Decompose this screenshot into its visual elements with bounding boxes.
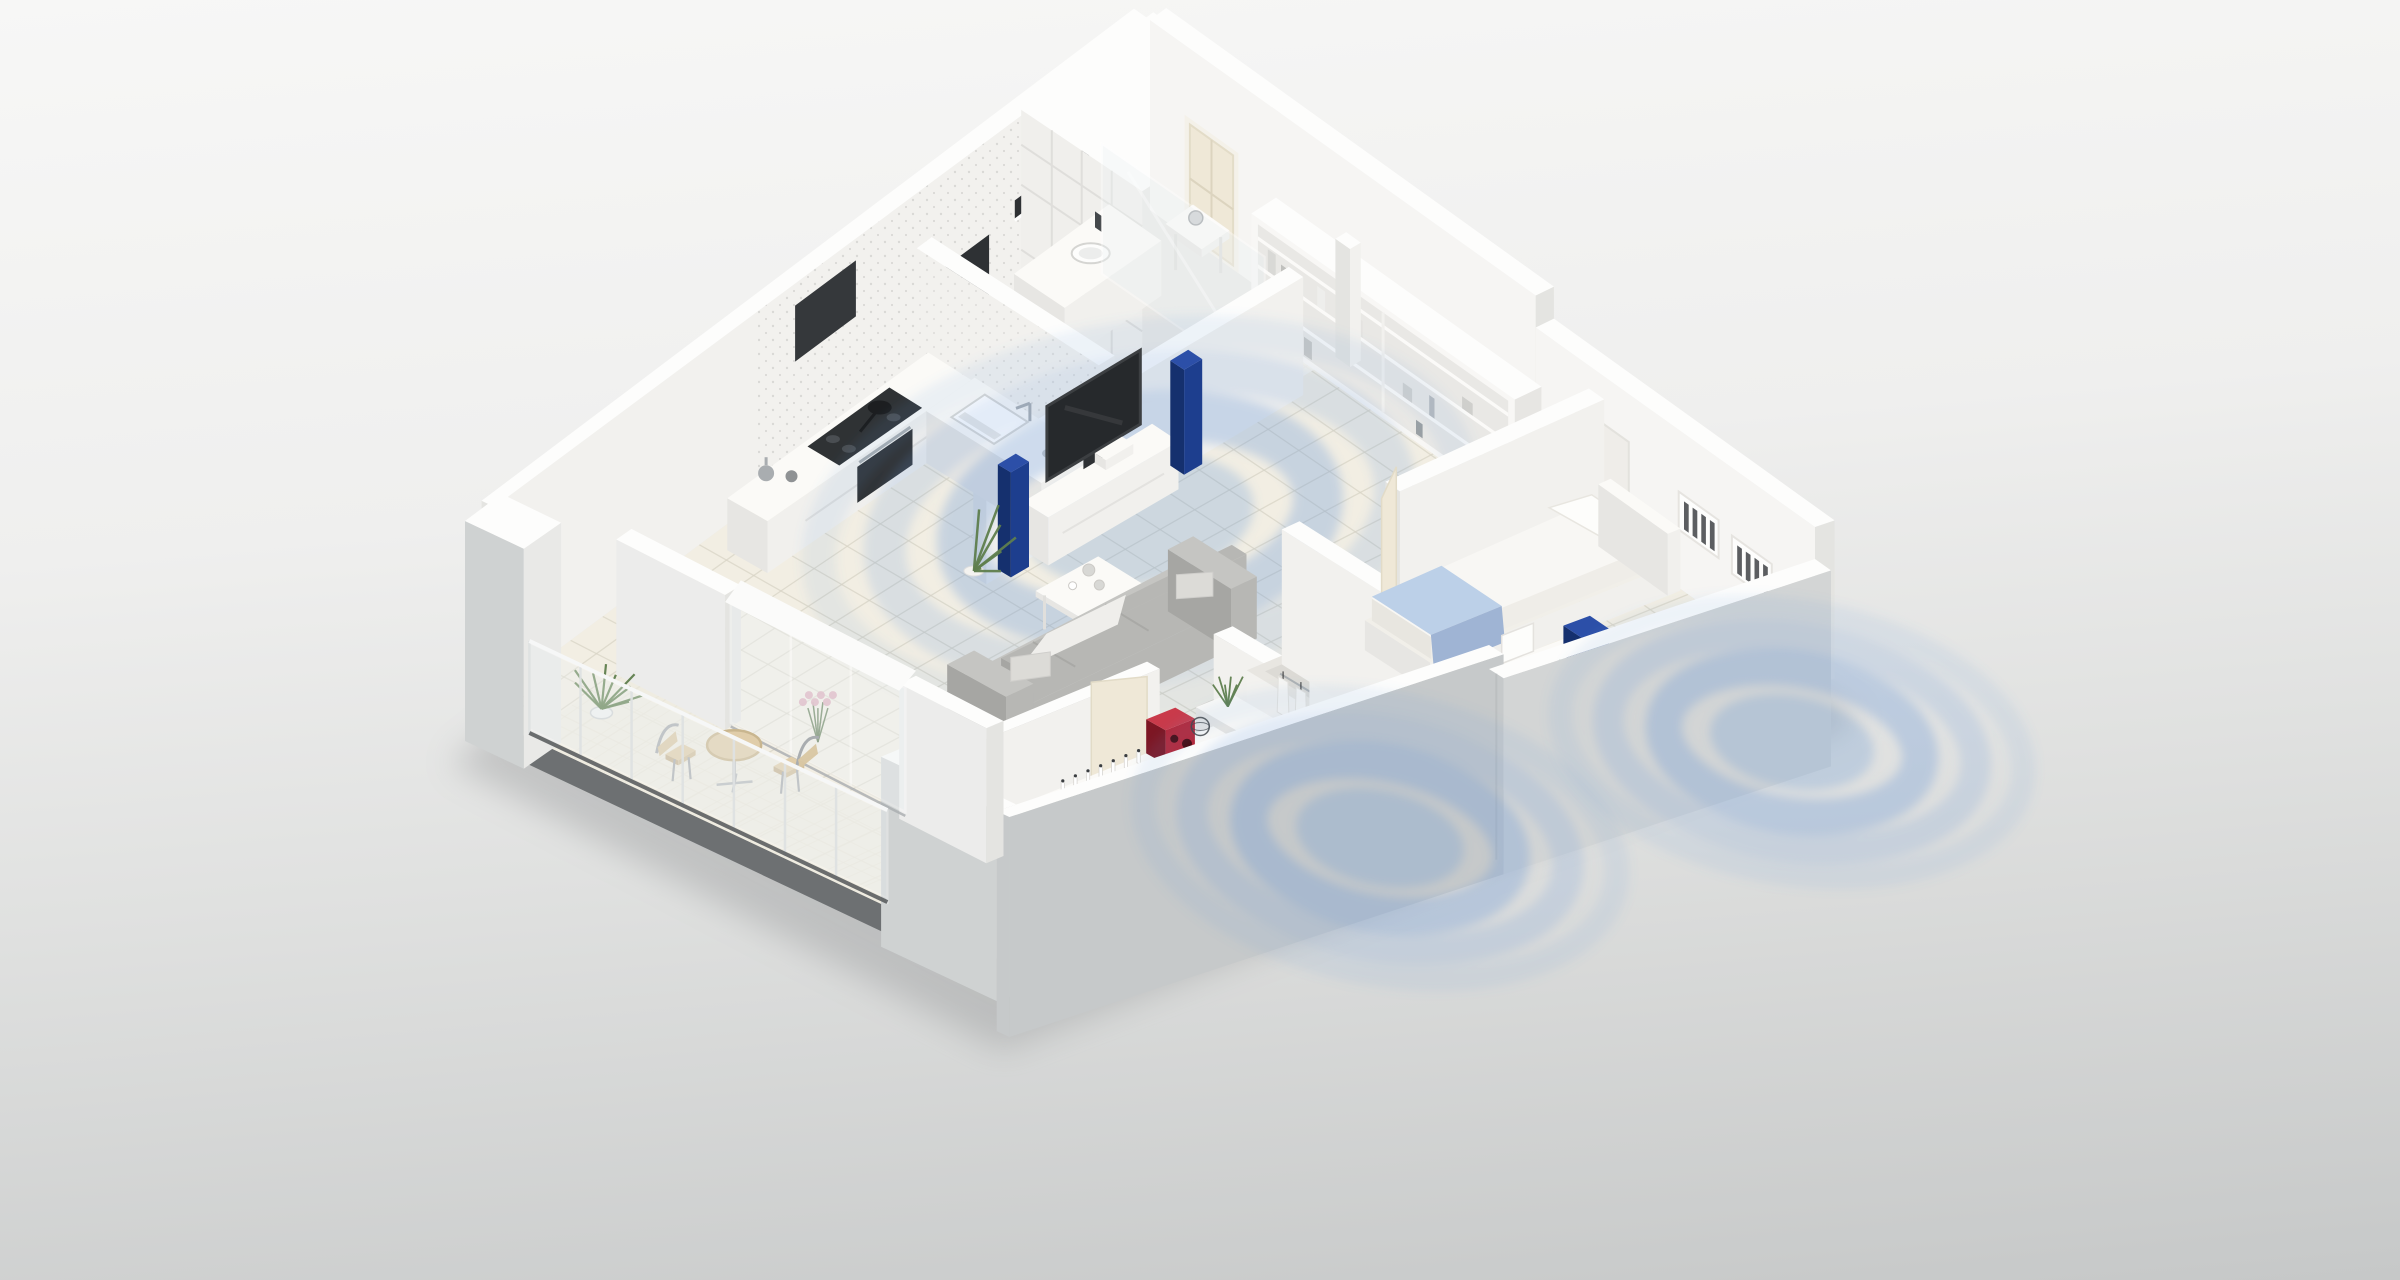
bottle-cap xyxy=(1124,754,1127,757)
sofa-pillow xyxy=(1011,652,1051,682)
bottle-cap xyxy=(1137,749,1140,752)
sink-inner xyxy=(1079,247,1103,259)
bottle-cap xyxy=(1061,779,1064,782)
west-corner-block-face-left xyxy=(465,521,524,769)
table-vase xyxy=(1069,582,1077,590)
teardrop-vase xyxy=(758,465,774,481)
tower-speaker-right-face-right xyxy=(1184,359,1202,475)
bottle-cap xyxy=(1074,774,1077,777)
tower-speaker-left-face-right xyxy=(1011,462,1029,578)
bottle-cap xyxy=(1086,769,1089,772)
table-vase xyxy=(1083,564,1095,576)
tower-speaker-left-face-left xyxy=(998,465,1011,578)
balcony-wall-right-face-right xyxy=(986,721,1003,863)
decor-bottle xyxy=(1137,751,1140,765)
books xyxy=(1710,520,1715,551)
books xyxy=(1746,552,1751,583)
sofa-pillow xyxy=(1176,572,1213,599)
bottle-cap xyxy=(1099,764,1102,767)
books xyxy=(1693,508,1698,539)
books xyxy=(1701,514,1706,545)
glass-sphere xyxy=(786,470,798,482)
isometric-scene xyxy=(0,0,2400,1280)
books xyxy=(1684,501,1689,532)
table-vase xyxy=(1094,580,1104,590)
burner xyxy=(826,435,840,443)
bottle-cap xyxy=(1112,759,1115,762)
books xyxy=(1737,545,1742,576)
tower-speaker-right-face-left xyxy=(1170,361,1184,475)
apartment-floorplan-render xyxy=(0,0,2400,1280)
headboard-face-right xyxy=(1668,529,1681,596)
